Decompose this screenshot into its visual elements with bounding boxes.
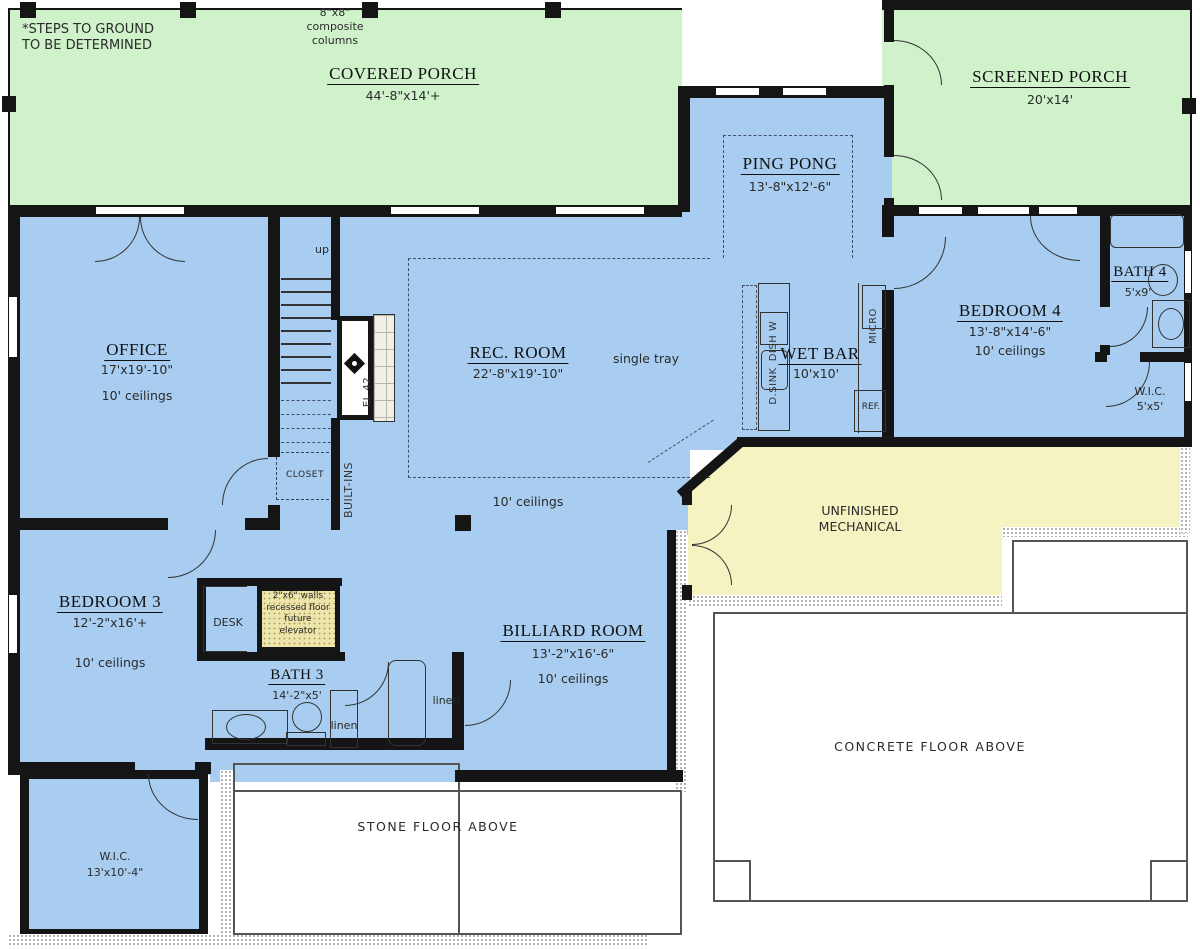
stairs-dashed [281,400,331,401]
bedroom3-title: BEDROOM 3 [57,592,163,613]
wall [678,86,690,212]
sink-bowl [226,714,266,740]
foundation-strip [675,530,687,792]
foundation-strip [220,770,233,947]
billiard-ceiling: 10' ceilings [538,671,609,687]
stairs-dashed [281,442,331,443]
rec-room-title: REC. ROOM [467,343,568,364]
wall [331,205,340,320]
rec-room-dims: 22'-8"x19'-10" [473,366,563,382]
window [8,594,18,654]
billiard-dims: 13'-2"x16'-6" [532,646,615,662]
window [1184,362,1192,402]
bath4-title: BATH 4 [1111,264,1168,282]
stone-floor-note: STONE FLOOR ABOVE [357,819,518,835]
office-ceiling: 10' ceilings [102,388,173,404]
wet-bar-zone [742,285,757,430]
wall [8,205,20,775]
stairs-upper [281,278,331,392]
floor-plan: EL 42 DISH W D.SINK MICRO REF. *STEPS TO… [0,0,1200,949]
concrete-floor-note: CONCRETE FLOOR ABOVE [834,739,1026,755]
concrete-floor-outline [1012,540,1188,614]
wall [882,0,1192,10]
toilet [292,702,322,732]
wall [195,762,211,774]
concrete-floor-outline [713,612,1188,902]
covered-porch-dims: 44'-8"x14'+ [366,88,441,104]
covered-porch-title: COVERED PORCH [327,64,479,85]
window [390,206,480,215]
wet-bar-title: WET BAR [778,344,861,365]
wic3-dims: 13'x10'-4" [87,866,144,880]
desk-label: DESK [213,616,243,630]
wic4-dims: 5'x5' [1137,400,1164,414]
steps-note: *STEPS TO GROUND TO BE DETERMINED [22,22,154,55]
foundation-strip [688,595,1002,607]
stairs-dashed [281,414,331,415]
wall [331,418,340,530]
wall [884,85,894,157]
window [918,206,963,215]
structural-column [455,515,471,531]
bedroom4-title: BEDROOM 4 [957,301,1063,322]
closet-label: CLOSET [286,470,324,481]
billiard-title: BILLIARD ROOM [500,621,645,642]
wall [455,770,683,782]
porch-column [1182,98,1196,114]
fireplace-label: EL 42 [362,377,373,407]
stone-floor-outline [233,790,682,935]
porch-column [20,2,36,18]
bathtub [1110,214,1184,248]
up-label: up [315,243,329,257]
concrete-step [713,860,751,902]
porch-column [362,2,378,18]
bathtub [388,660,426,746]
wall [198,652,345,661]
foundation-strip [8,934,648,947]
linen-label: linen [433,694,460,708]
screened-porch-dims: 20'x14' [1027,92,1073,108]
toilet-tank [286,732,326,746]
window [95,206,185,215]
rec-ceiling-note: 10' ceilings [493,494,564,510]
porch-column [2,96,16,112]
sink-bowl [1158,308,1184,340]
porch-column [180,2,196,18]
bedroom4-ceiling: 10' ceilings [975,343,1046,359]
wall [884,198,894,212]
concrete-step [1150,860,1188,902]
wall [884,2,894,42]
wall [1100,205,1110,307]
bedroom3-dims: 12'-2"x16'+ [73,615,148,631]
window [555,206,645,215]
wall [8,762,135,774]
bedroom3-ceiling: 10' ceilings [75,655,146,671]
bath4-dims: 5'x9' [1125,286,1152,300]
foundation-strip [1002,527,1188,537]
foundation-strip [1180,443,1190,533]
bath3-dims: 14'-2"x5' [272,689,322,703]
bath3-title: BATH 3 [268,667,325,685]
columns-note: 8"x8" composite columns [306,6,363,47]
mechanical-title: UNFINISHED MECHANICAL [819,503,902,534]
window [1038,206,1078,215]
window [8,296,18,358]
stairs-dashed [281,428,331,429]
wall [737,437,1192,447]
wet-bar-dims: 10'x10' [793,366,839,382]
office-dims: 17'x19'-10" [101,362,173,378]
window [977,206,1030,215]
wall [1100,345,1110,355]
wall [682,585,692,600]
fireplace-stone [373,314,395,422]
fireplace-icon-dot [352,361,357,366]
bar-sink-label: D.SINK [768,367,779,404]
wic4-title: W.I.C. [1134,385,1165,399]
built-ins-label: BUILT-INS [342,462,355,518]
wall [268,205,280,457]
bedroom4-dims: 13'-8"x14'-6" [969,324,1052,340]
window [1184,250,1192,294]
office-title: OFFICE [104,340,170,361]
wall [198,578,342,586]
wall [268,505,280,530]
window [782,87,827,96]
ping-pong-dims: 13'-8"x12'-6" [749,179,832,195]
screened-porch-title: SCREENED PORCH [970,67,1130,88]
ping-pong-title: PING PONG [741,154,840,175]
porch-column [545,2,561,18]
window [715,87,760,96]
wall [667,530,676,782]
wic3-title: W.I.C. [99,850,130,864]
wall [8,518,168,530]
elevator-note: 2"x6" walls recessed floor future elevat… [266,591,329,638]
linen-label: linen [331,719,358,733]
single-tray-note: single tray [613,351,679,367]
bar-wall-counter [858,283,886,433]
